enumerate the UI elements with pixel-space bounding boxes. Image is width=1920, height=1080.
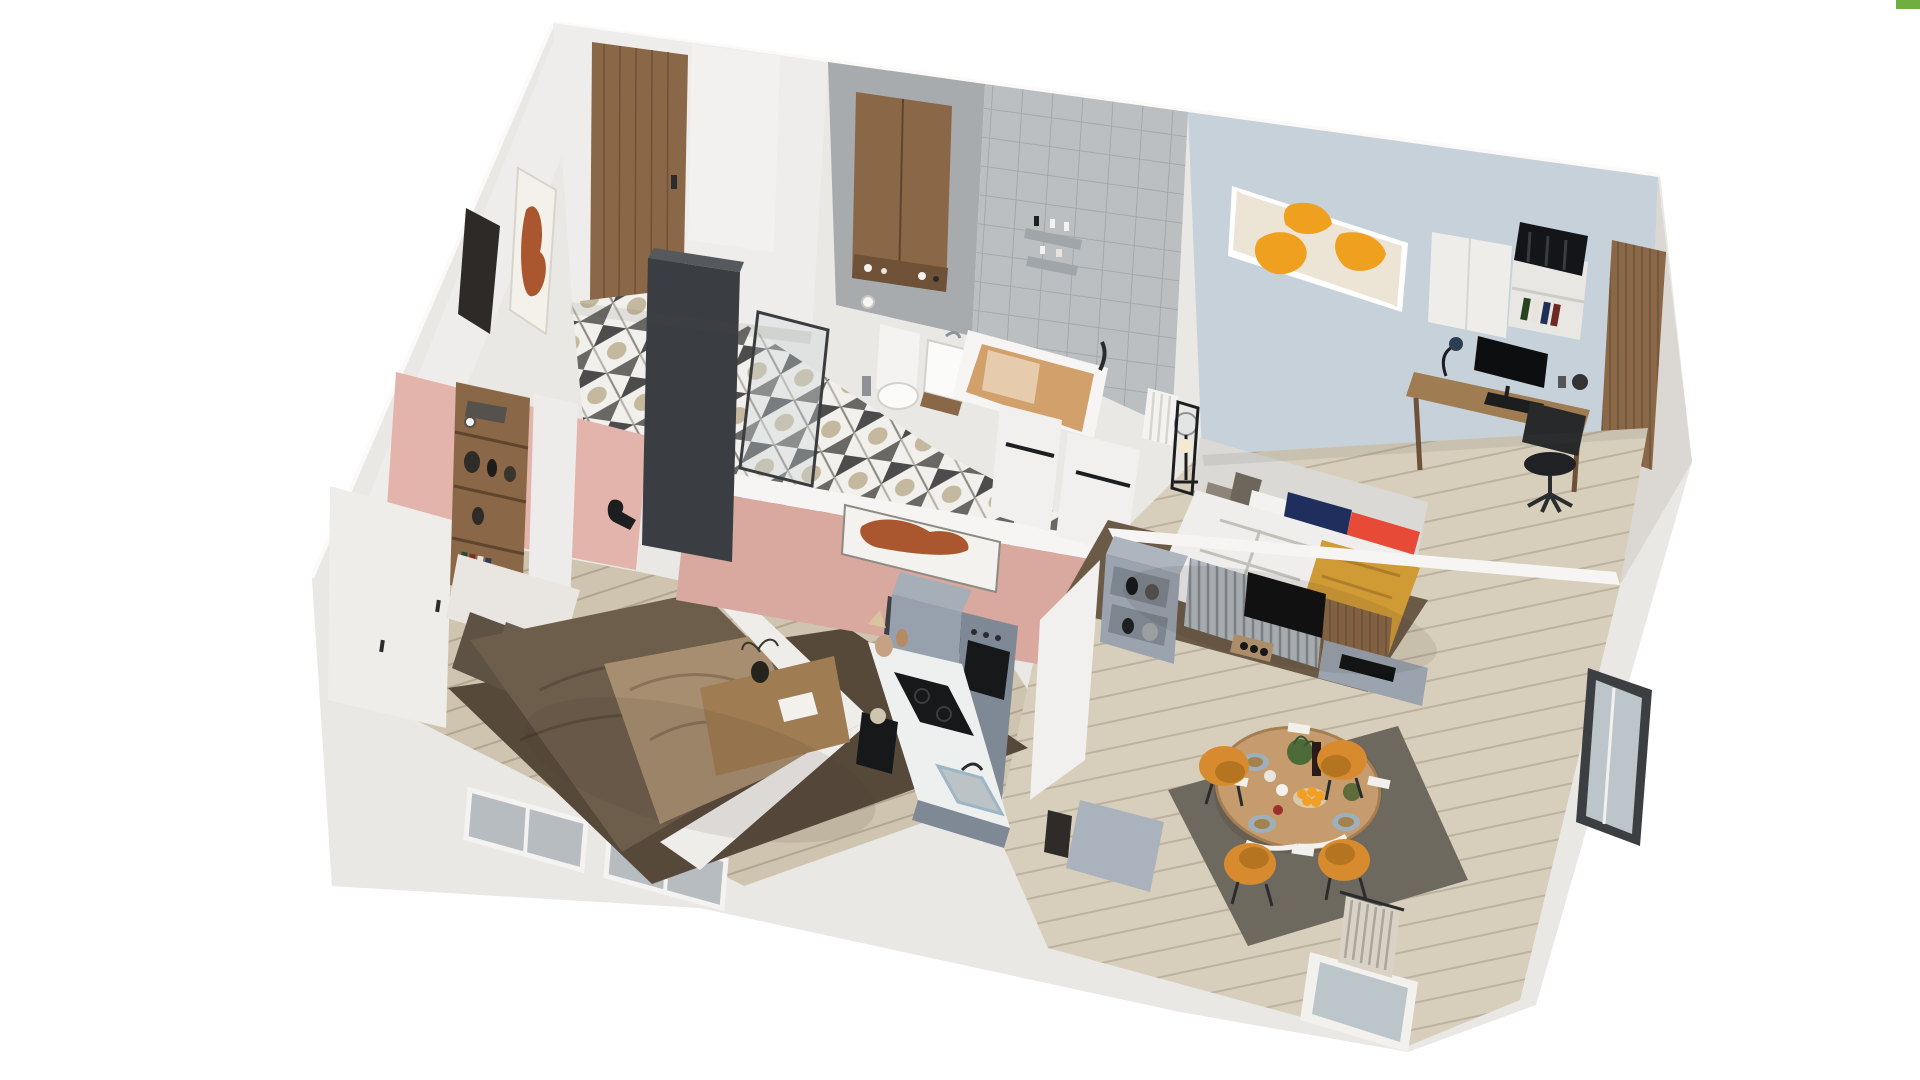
chair-seat <box>1524 452 1576 476</box>
plate-center <box>1338 817 1354 827</box>
wall-lamp <box>465 417 475 427</box>
toilet-seat <box>878 383 918 409</box>
bathroom-wall-cabinet <box>852 92 952 292</box>
toiletry-bottle <box>918 272 926 280</box>
pencil-cup <box>1558 376 1566 388</box>
plate-center <box>1254 819 1270 829</box>
plate-center <box>1247 757 1263 767</box>
shelf-bottle <box>1056 249 1062 257</box>
render-artifact <box>1896 0 1920 9</box>
oven-knob <box>995 635 1001 641</box>
chair-seat <box>1325 843 1355 865</box>
white-jar <box>1264 770 1276 782</box>
orange <box>1311 797 1321 807</box>
berry-dish <box>1273 805 1283 815</box>
door-handle <box>671 175 677 189</box>
shelf-bottle <box>1040 246 1045 254</box>
white-jar <box>1276 784 1288 796</box>
black-stool <box>1044 810 1072 858</box>
gray-vase <box>1142 623 1158 641</box>
east-windows <box>1576 668 1652 846</box>
paper-roll <box>862 296 874 308</box>
oven-knob <box>983 632 989 638</box>
dark-wardrobe-body <box>642 258 740 562</box>
vase <box>464 451 480 473</box>
half-wall <box>990 404 1062 532</box>
entry-closet-column <box>688 44 780 252</box>
vase <box>487 459 497 477</box>
desk-lamp-head <box>1449 337 1463 351</box>
screenshot-canvas <box>0 0 1920 1080</box>
coffee-top <box>870 708 886 724</box>
clay-vase <box>896 629 908 647</box>
toilet-brush <box>862 376 871 396</box>
chair-seat <box>1321 755 1351 777</box>
shelf-bottle <box>1050 219 1055 228</box>
toiletry-bottle <box>864 264 872 272</box>
floorplan-render <box>0 0 1920 1080</box>
bench-vase <box>751 661 769 683</box>
lantern <box>1122 618 1134 634</box>
toiletry-bottle <box>933 276 939 282</box>
wardrobe-right <box>528 394 578 606</box>
vase <box>504 466 516 482</box>
entry-wardrobe-dark <box>642 248 744 562</box>
oven-knob <box>971 629 977 635</box>
vase <box>472 507 484 525</box>
radiator-white <box>1142 388 1178 446</box>
orange <box>1302 796 1312 806</box>
wardrobe-left <box>328 486 452 728</box>
shelf-bottle <box>1064 222 1069 231</box>
clay-vase <box>875 635 893 657</box>
chair-seat <box>1239 847 1269 869</box>
chair-seat <box>1215 761 1245 783</box>
desk-plant-ball <box>1572 374 1588 390</box>
toiletry-bottle <box>881 268 887 274</box>
shelf-bottle <box>1034 216 1039 226</box>
lamp-bulb <box>1178 439 1192 453</box>
